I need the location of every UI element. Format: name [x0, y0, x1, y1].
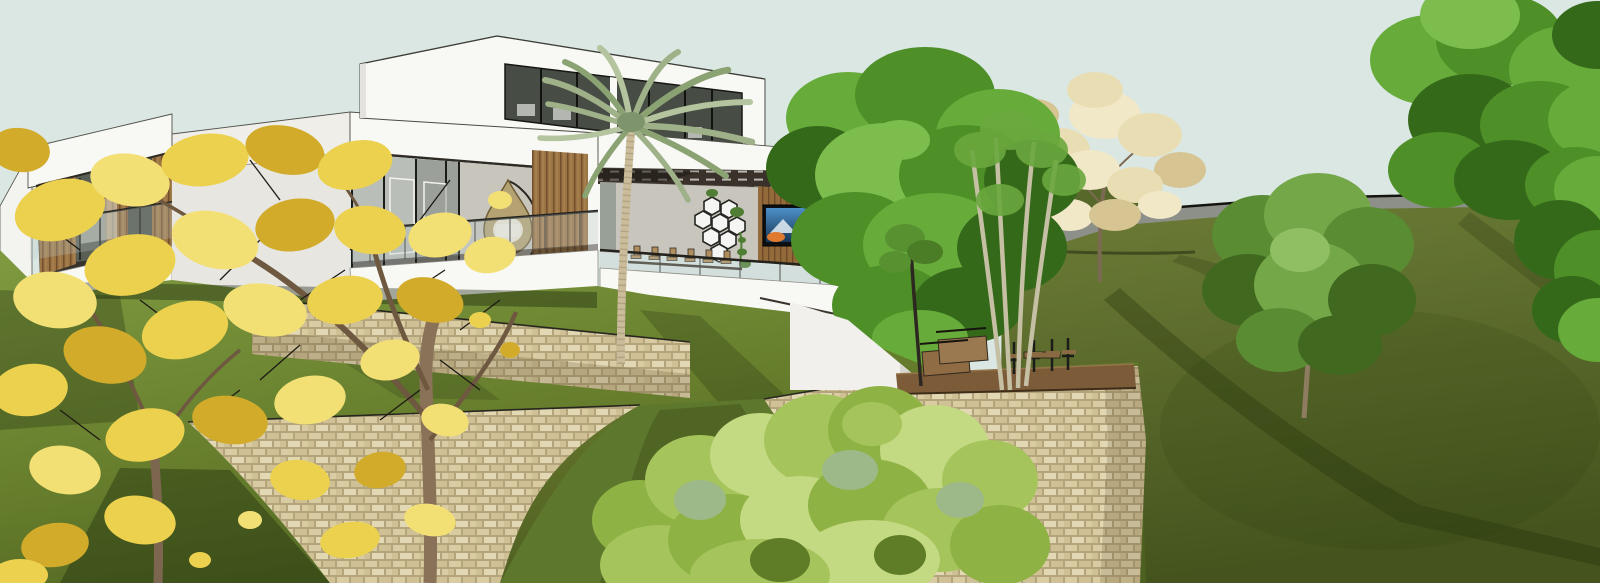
scene-rendering: [0, 0, 1600, 583]
architectural-rendering: [0, 0, 1600, 583]
tree-trunk: [426, 318, 434, 583]
